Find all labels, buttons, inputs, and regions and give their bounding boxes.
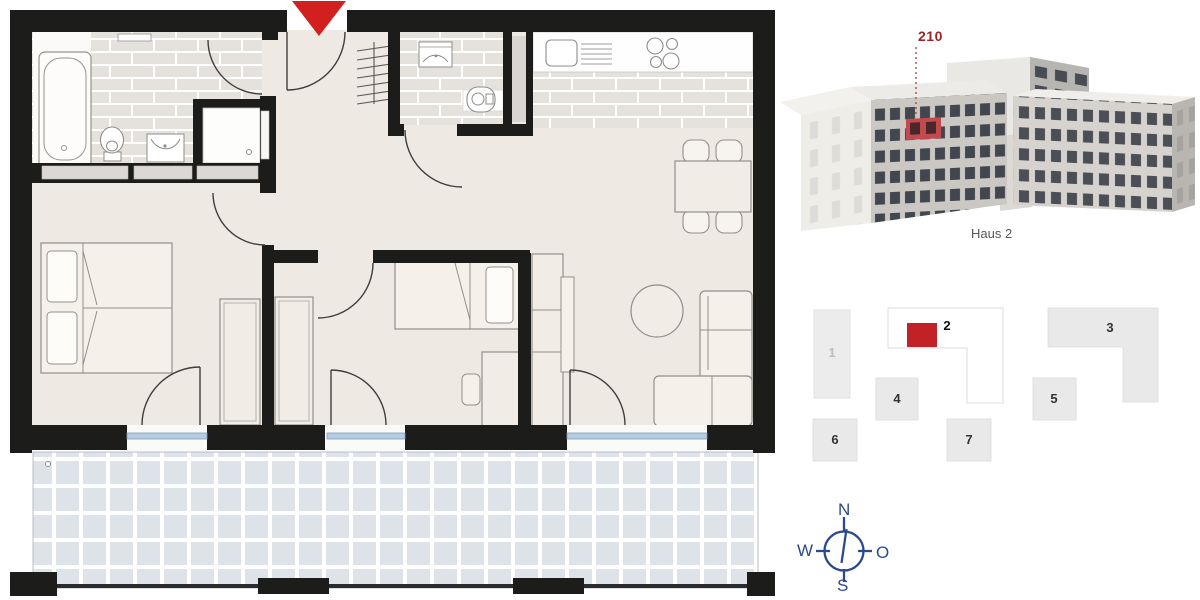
kitchen-floor [533,72,753,128]
desk-chair [462,374,480,405]
compass-west-label: W [797,541,813,561]
window-bedroom1 [127,433,207,439]
building-right-wing [1013,89,1195,212]
wardrobe-bedroom2 [275,297,313,425]
unit-number-label: 210 [918,28,943,44]
wardrobe-bedroom1 [220,299,260,425]
wc-toilet [463,87,503,112]
building-isometric [780,40,1200,240]
site-block-label-3: 3 [1102,320,1118,335]
window-living [567,433,707,439]
site-plan [785,300,1200,470]
site-block-label-2: 2 [939,318,955,333]
floor-plan [0,0,780,600]
window-bedroom2 [327,433,405,439]
compass-south-label: S [837,576,848,596]
compass-east-label: O [876,543,889,563]
double-bed [41,243,172,373]
installation-shaft [512,36,526,122]
site-block-label-5: 5 [1046,391,1062,406]
bathtub [39,52,91,168]
site-unit-marker [907,323,937,347]
balcony [10,452,775,596]
shower-glass [261,111,269,159]
site-block-label-1: 1 [824,345,840,360]
site-block-label-6: 6 [827,432,843,447]
toilet [101,127,124,161]
site-block-label-4: 4 [889,391,905,406]
highlighted-apartment [906,117,941,140]
dining-table [675,161,751,212]
wall-cabinet-niche [42,166,258,179]
balcony-drain [46,462,51,467]
single-bed [395,262,520,329]
washbasin [147,134,184,162]
round-table [631,285,683,337]
compass-north-label: N [838,500,850,520]
building-name-label: Haus 2 [971,226,1012,241]
shower-drain [247,150,252,155]
bathroom-shelf [118,34,151,41]
floorplan-page: 210 Haus 2 1 2 3 4 5 6 7 N W O S [0,0,1200,600]
building-left-wing [780,80,1007,231]
wc-washbasin [419,42,452,67]
shower [193,99,262,168]
site-block-label-7: 7 [961,432,977,447]
